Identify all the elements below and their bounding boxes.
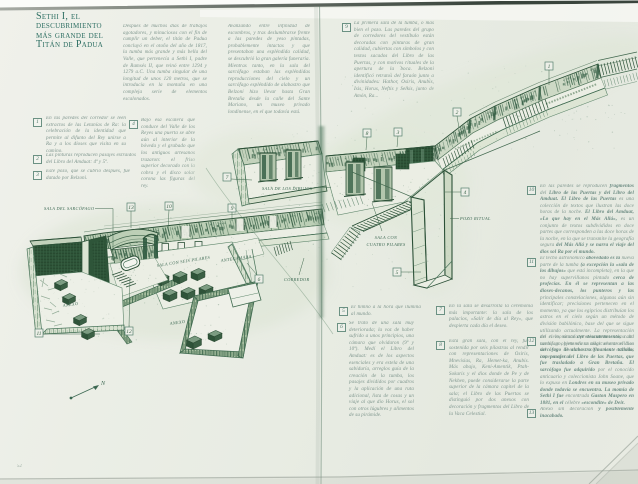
svg-text:1: 1 — [548, 64, 551, 70]
svg-text:9: 9 — [231, 206, 234, 212]
svg-text:SALA DE LOS DIBUJOS: SALA DE LOS DIBUJOS — [262, 186, 313, 191]
svg-text:2: 2 — [456, 110, 459, 116]
svg-text:12: 12 — [126, 329, 132, 335]
svg-text:CUATRO PILARES: CUATRO PILARES — [367, 242, 406, 247]
svg-text:11: 11 — [36, 331, 41, 337]
svg-text:N: N — [100, 381, 106, 387]
svg-text:4: 4 — [464, 189, 467, 196]
svg-text:CORREDOR: CORREDOR — [284, 277, 309, 282]
svg-text:5: 5 — [396, 270, 399, 276]
svg-text:POZO RITUAL: POZO RITUAL — [459, 216, 491, 221]
svg-text:3: 3 — [396, 130, 400, 136]
svg-text:8: 8 — [366, 131, 369, 137]
svg-text:13: 13 — [128, 205, 134, 211]
svg-text:7: 7 — [226, 175, 229, 181]
svg-text:SALA DEL SARCÓFAGO: SALA DEL SARCÓFAGO — [44, 206, 94, 211]
svg-text:10: 10 — [166, 204, 172, 210]
svg-text:6: 6 — [258, 277, 261, 283]
svg-text:SALA CON: SALA CON — [375, 235, 398, 240]
